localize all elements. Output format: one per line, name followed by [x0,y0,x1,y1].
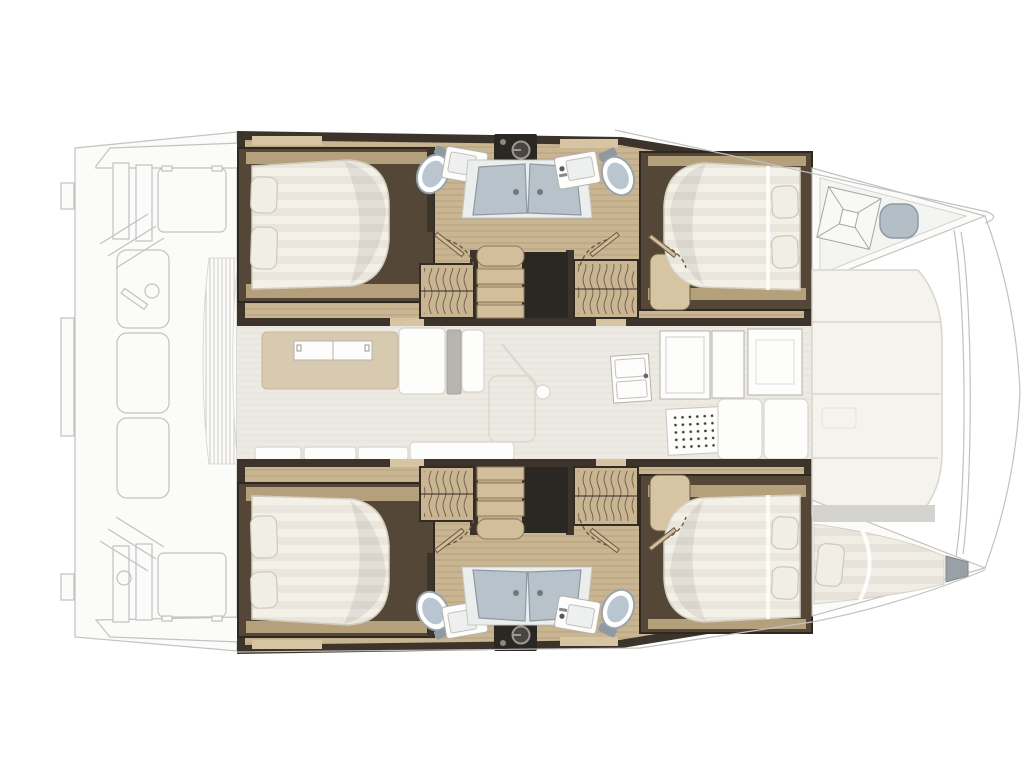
storage-bench [358,447,408,460]
cockpit-bench [117,418,169,498]
swim-platform [61,318,74,436]
berth-headboard [813,505,935,522]
sofa-cushion [399,328,445,394]
tall-cabinet [712,331,744,398]
starboard-hull-interior [237,459,812,654]
storage-bench [255,447,301,460]
pillow [815,543,845,587]
hatch-hinge [162,166,172,171]
storage-bench [410,442,514,460]
louvered-door [203,258,238,464]
hatch-hinge [212,166,222,171]
saloon-sofa [399,328,484,394]
cockpit-bench [117,333,169,413]
floor-plan-canvas [0,0,1024,767]
stern-cleat [61,183,74,209]
aft-deck-ghost [61,132,240,651]
hatch-center [839,209,858,227]
forward-crossbeam [954,230,964,556]
stern-cleat [61,574,74,600]
refrigerator-cabinet [660,331,710,399]
deck-hatch [158,553,226,617]
hatch-hinge [212,616,222,621]
pouf [536,385,550,399]
counter-cushion [764,399,808,459]
galley-sink-unit [610,354,651,404]
deck-hatch [158,168,226,232]
forward-crossbeam [961,232,970,554]
sofa-cushion [462,330,484,392]
port-hull-interior [237,131,812,326]
boat-floor-plan [0,0,1024,767]
hatch-hinge [162,616,172,621]
bow-bridle-lines [985,216,1020,568]
bow-seat [880,204,918,238]
sunpad [812,270,942,516]
stove-grate-dots [671,412,715,450]
forward-cockpit [812,270,942,516]
galley-sink-counter [610,354,651,404]
sofa-backrest [447,330,461,394]
counter-cushion [718,399,762,459]
storage-bench [304,447,356,460]
forepeak-hatch [817,187,881,250]
saloon [237,326,812,460]
saloon-table [294,341,372,360]
stove [666,407,720,456]
